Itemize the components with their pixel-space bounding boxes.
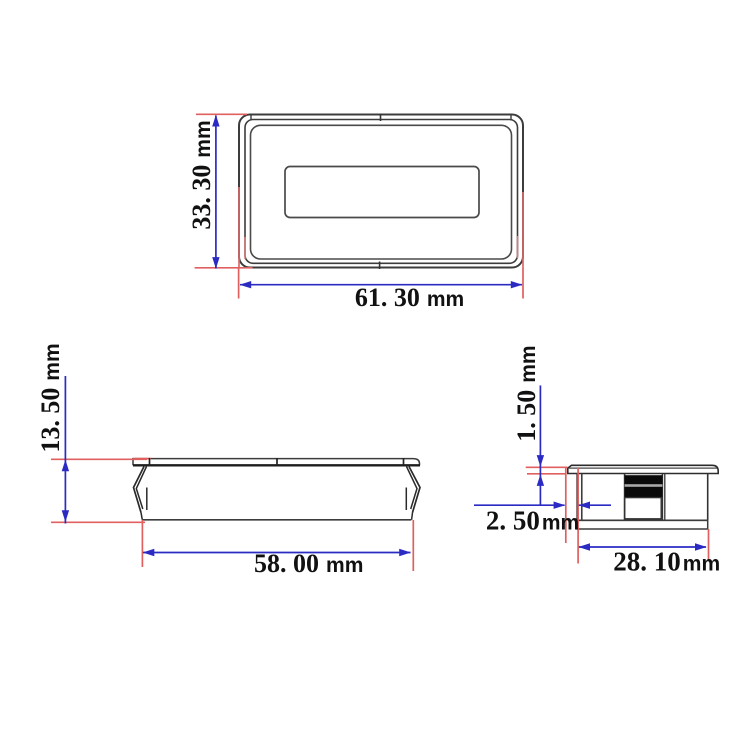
svg-text:33. 30mm: 33. 30mm <box>187 120 216 229</box>
svg-text:58. 00mm: 58. 00mm <box>254 549 363 578</box>
svg-text:13. 50mm: 13. 50mm <box>36 343 65 452</box>
svg-text:61. 30mm: 61. 30mm <box>355 283 464 312</box>
svg-text:28. 10mm: 28. 10mm <box>613 547 720 577</box>
svg-text:1. 50mm: 1. 50mm <box>512 345 541 441</box>
